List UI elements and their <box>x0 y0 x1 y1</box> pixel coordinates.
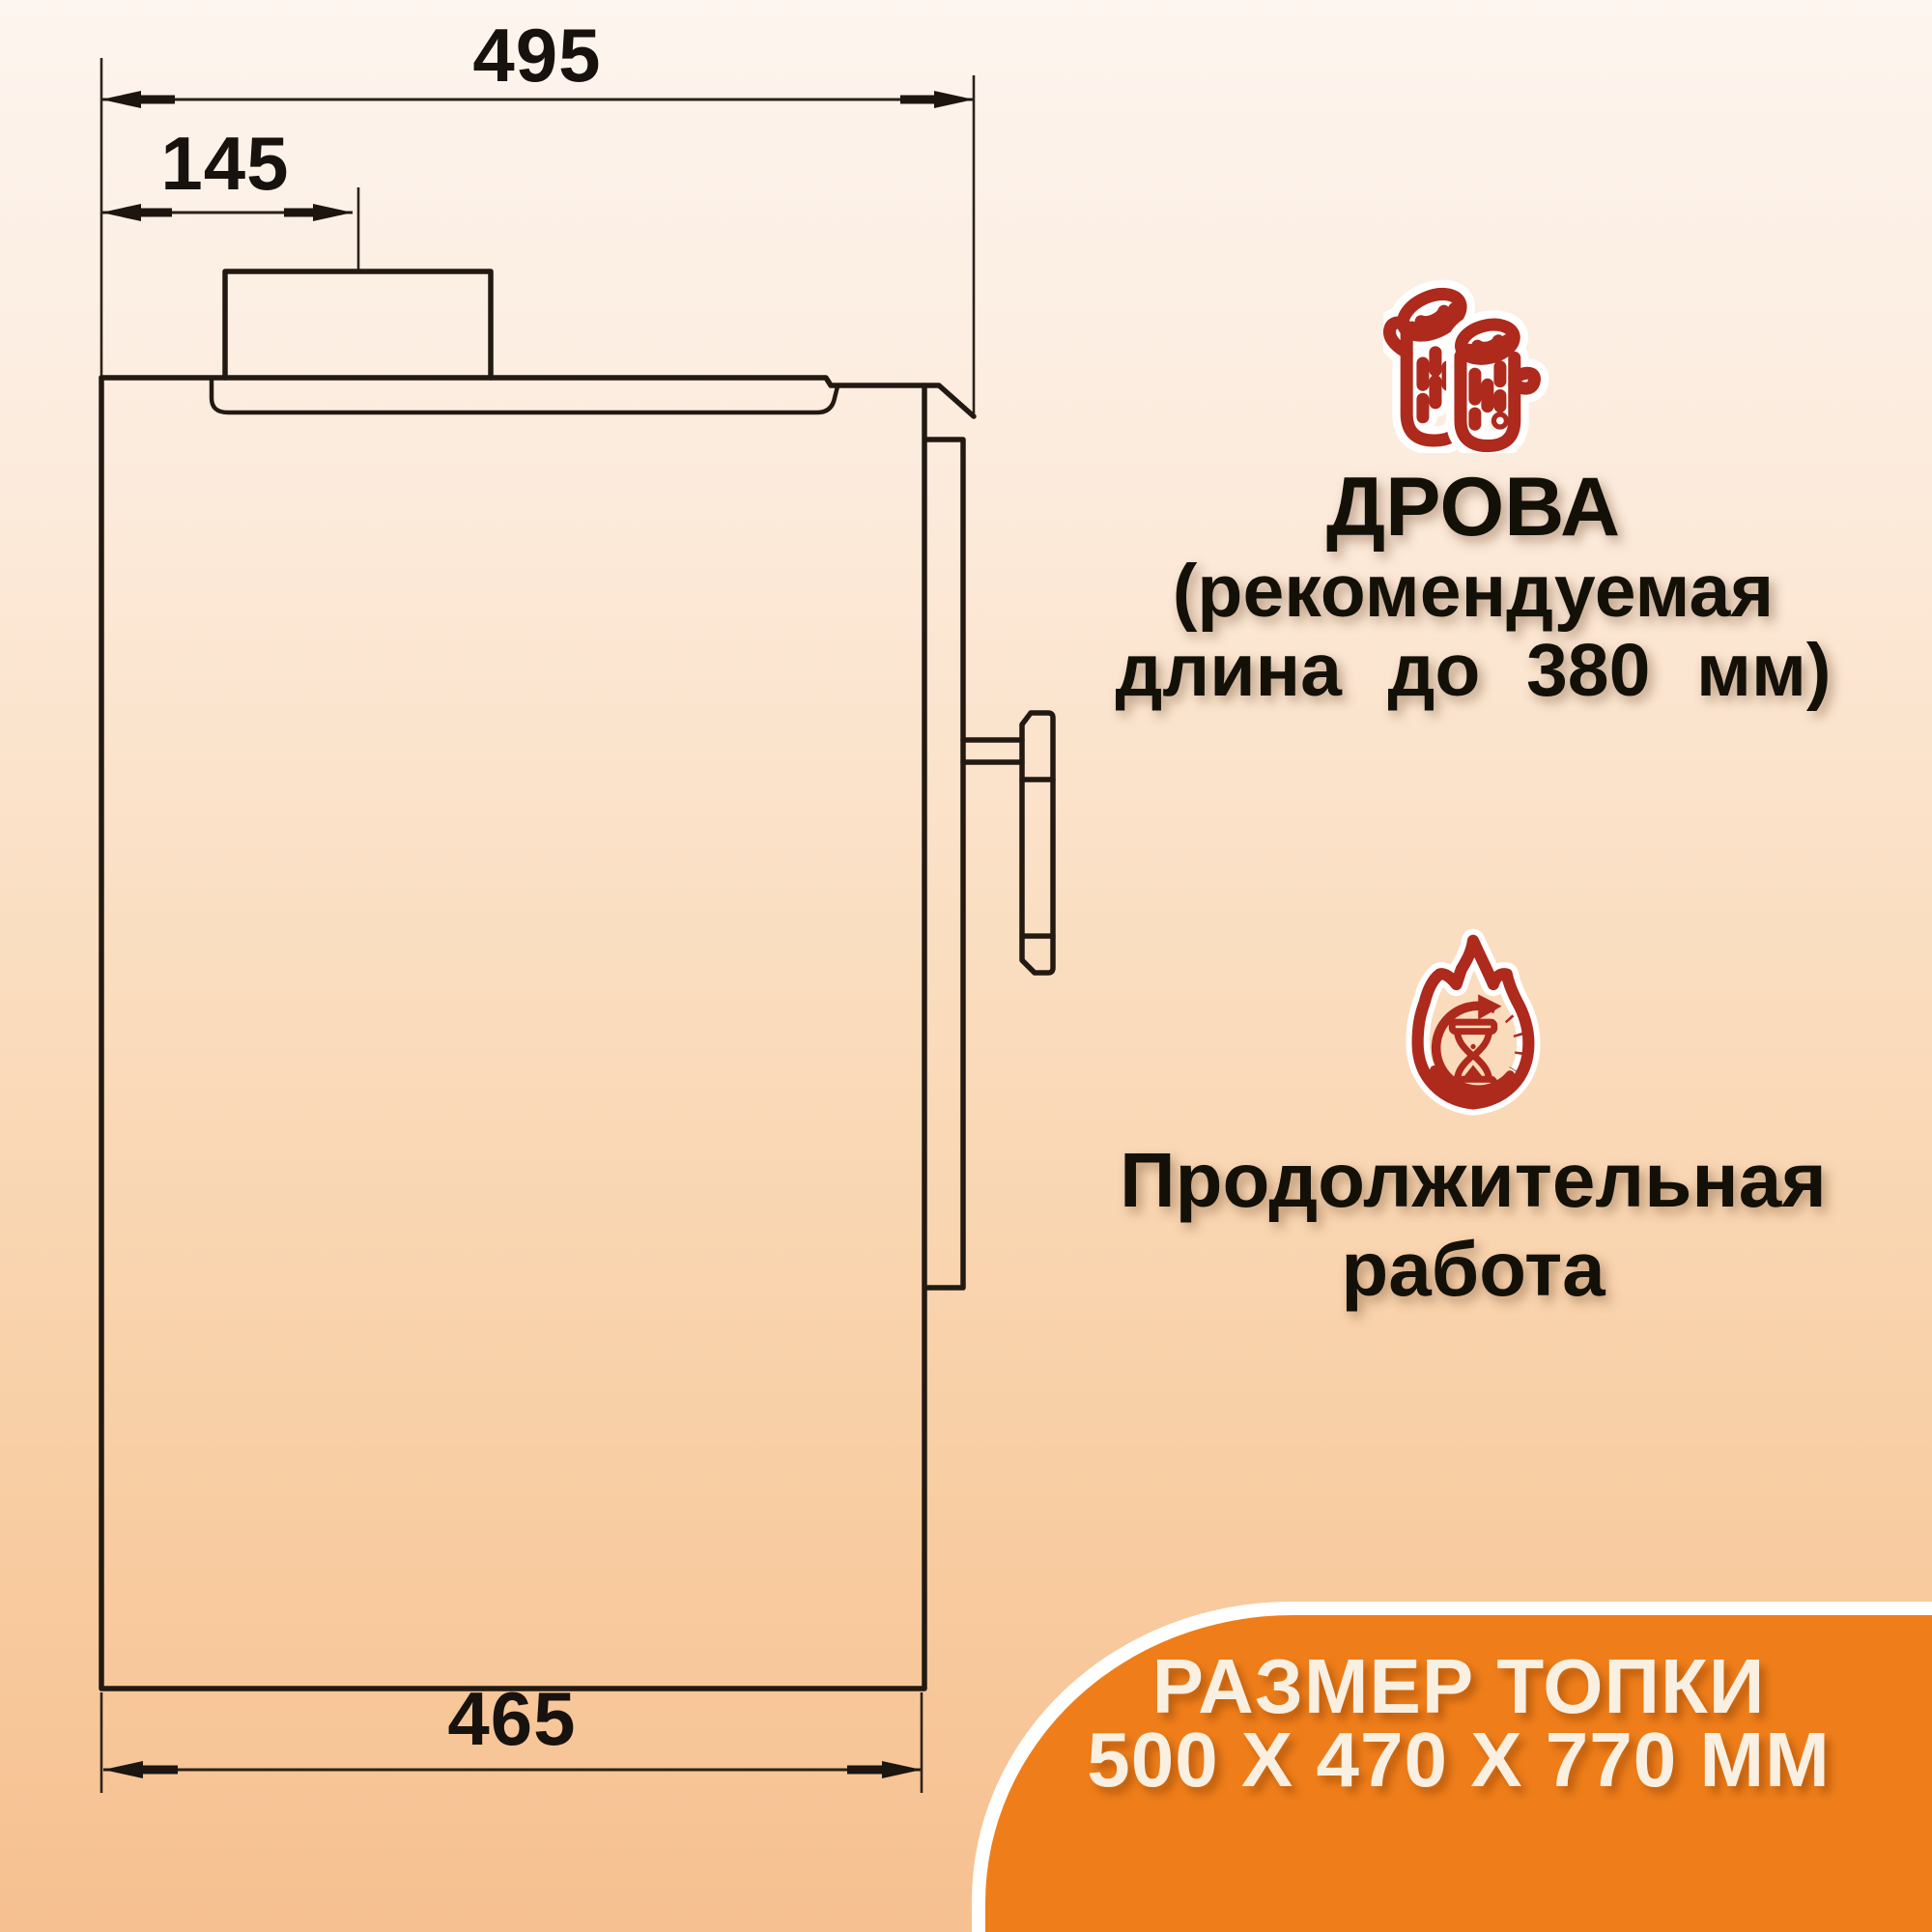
infographic-canvas: 495 145 465 <box>0 0 1932 1932</box>
dimension-arrows <box>101 91 974 1778</box>
feature-long-burn: Продолжительная работа <box>1014 925 1932 1314</box>
firebox-size-panel: РАЗМЕР ТОПКИ 500 Х 470 Х 770 ММ <box>972 1602 1932 1932</box>
feature-wood: ДРОВА (рекомендуемая длина до 380 мм) <box>1014 273 1932 710</box>
extension-lines <box>101 58 974 1793</box>
stove-body <box>101 378 974 1689</box>
feature-long-burn-line-1: Продолжительная <box>1014 1136 1932 1225</box>
feature-long-burn-line-2: работа <box>1014 1225 1932 1314</box>
firebox-size-title: РАЗМЕР ТОПКИ <box>985 1650 1932 1723</box>
feature-wood-subtitle-line-2: длина до 380 мм) <box>1014 631 1932 710</box>
dimension-flue-offset: 145 <box>160 121 289 206</box>
wood-logs-icon <box>1383 273 1563 453</box>
firebox-size-panel-text: РАЗМЕР ТОПКИ 500 Х 470 Х 770 ММ <box>985 1650 1932 1797</box>
stove-flue-collar <box>225 271 491 378</box>
feature-wood-title: ДРОВА <box>1014 463 1932 552</box>
dimension-lines <box>101 99 974 1770</box>
dimension-top-width: 495 <box>472 13 601 98</box>
flame-timer-icon <box>1396 925 1550 1121</box>
dimension-bottom-depth: 465 <box>447 1676 576 1761</box>
stove-door <box>925 440 963 1288</box>
feature-wood-subtitle-line-1: (рекомендуемая <box>1014 552 1932 631</box>
firebox-size-value: 500 Х 470 Х 770 ММ <box>985 1723 1932 1797</box>
